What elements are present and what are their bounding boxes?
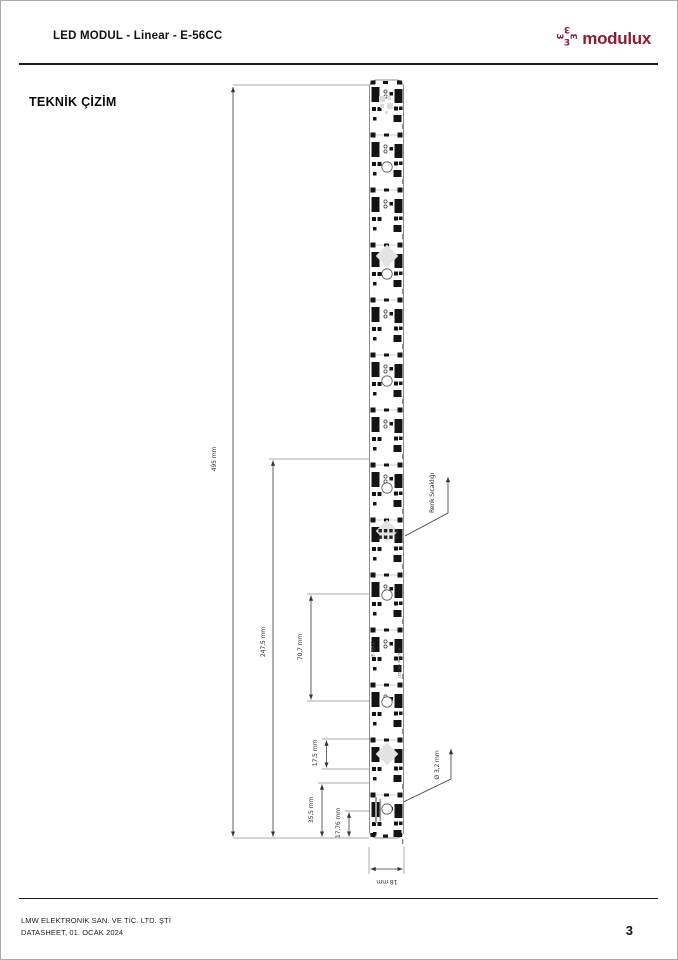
dimension-overall-length: 495 mm [211,87,233,837]
page-number: 3 [626,923,633,938]
dimension-module-pitch: 35,5 mm [308,785,322,837]
footer-edition: DATASHEET, 01. OCAK 2024 [21,927,171,939]
callout-label-color-temp: Renk Sıcaklığı [428,473,436,513]
dimension-led-pitch: 17,5 mm [312,740,327,768]
dimension-width: 18 mm [371,869,403,885]
dim-label-overall: 495 mm [211,447,218,472]
pcb-marking-model: E-56CC [371,641,376,656]
dim-label-half: 247,5 mm [260,627,267,657]
pcb-marking-series: LED BAR MODULE [398,648,402,679]
dimension-hole-to-end: 17,76 mm [335,808,349,838]
callout-color-temperature: Renk Sıcaklığı [405,473,448,536]
dim-label-hole-pitch: 70,7 mm [297,634,304,661]
footer-company: LMW ELEKTRONİK SAN. VE TİC. LTD. ŞTİ [21,915,171,927]
datasheet-page: LED MODUL - Linear - E-56CC 3 3 3 3 modu… [0,0,678,960]
footer-divider [19,898,658,899]
dimension-hole-pitch: 70,7 mm [297,596,311,700]
dim-label-hole-diameter: Ø 3,2 mm [433,750,441,779]
footer: LMW ELEKTRONİK SAN. VE TİC. LTD. ŞTİ DAT… [21,915,171,939]
pcb-strip: E-56CC LED BAR MODULE [370,80,404,844]
dim-label-width: 18 mm [376,878,397,885]
dim-label-hole-to-end: 17,76 mm [335,808,342,838]
dim-label-led-pitch: 17,5 mm [312,740,319,767]
dimension-half-length: 247,5 mm [260,461,273,837]
technical-drawing: 495 mm 247,5 mm 70,7 mm 17,5 mm 35,5 mm … [1,1,678,960]
dim-label-module-pitch: 35,5 mm [308,797,315,824]
